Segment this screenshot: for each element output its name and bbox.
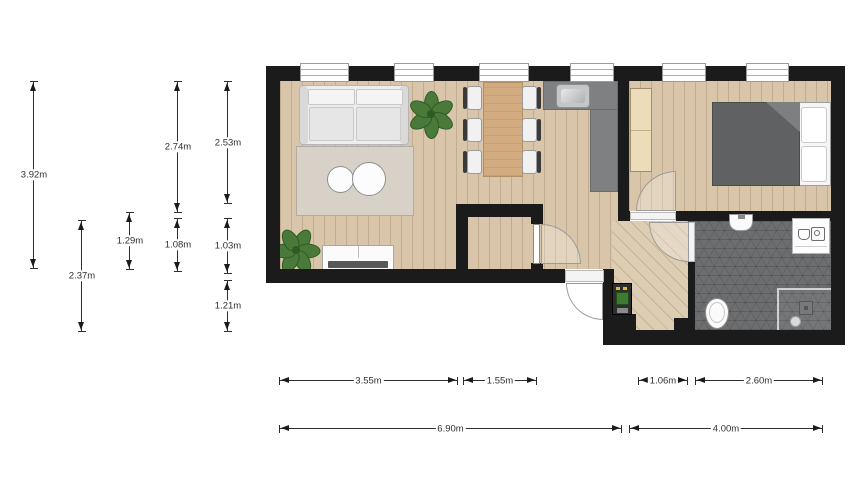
closet-wall: [531, 204, 543, 224]
window: [662, 63, 706, 82]
faucet: [738, 215, 745, 219]
dim-label: 1.29m: [115, 235, 145, 246]
dim-1-08m: 1.08m: [177, 219, 178, 271]
sofa-seat-cushion: [356, 107, 401, 141]
bed: [712, 102, 831, 186]
dim-2-60m: 2.60m: [696, 380, 822, 381]
shower-head: [790, 316, 801, 327]
wardrobe: [630, 88, 652, 172]
plant: [274, 226, 318, 274]
tv-cabinet: [322, 245, 394, 271]
dim-1-03m: 1.03m: [227, 219, 228, 273]
washer-panel-line: [795, 246, 827, 247]
closet-door: [533, 224, 540, 264]
bed-pillow: [801, 107, 827, 143]
dim-label: 1.08m: [163, 239, 193, 250]
dining-chair: [522, 150, 541, 174]
tech-closet-wall: [603, 314, 636, 331]
duvet-fold: [766, 102, 800, 132]
dim-label: 3.55m: [353, 375, 383, 386]
dim-2-53m: 2.53m: [227, 82, 228, 203]
exterior-wall-right: [831, 66, 845, 345]
dining-chair: [463, 118, 482, 142]
washer-dryer: [792, 218, 830, 254]
bedroom-door-threshold: [630, 212, 676, 220]
dim-label: 1.06m: [648, 375, 678, 386]
dining-table: [483, 82, 523, 177]
dim-2-37m: 2.37m: [81, 221, 82, 331]
meter: [617, 308, 628, 313]
exterior-wall-bottom: [266, 269, 565, 283]
dim-label: 2.37m: [67, 270, 97, 281]
floor-plan: 3.92m 2.37m 1.29m 2.74m 1.08m 2.53m 1.03…: [0, 0, 850, 500]
washer-door-icon: [811, 227, 825, 241]
sofa-back-cushion: [356, 89, 403, 105]
dining-chair: [463, 150, 482, 174]
dim-label: 2.74m: [163, 141, 193, 152]
dim-1-29m: 1.29m: [129, 213, 130, 269]
sink-basin: [561, 89, 585, 103]
dining-chair: [522, 86, 541, 110]
dim-label: 6.90m: [435, 423, 465, 434]
sofa-back-cushion: [308, 89, 355, 105]
dim-1-21m: 1.21m: [227, 281, 228, 331]
kitchen-counter: [590, 110, 618, 192]
bathroom-door-threshold: [688, 222, 695, 262]
soundbar: [328, 261, 388, 268]
exterior-wall-lower-bottom: [603, 330, 845, 345]
shower-enclosure: [777, 288, 831, 330]
exterior-wall-left: [266, 66, 280, 283]
entrance-door: [566, 283, 603, 320]
sofa-seat-cushion: [309, 107, 354, 141]
bed-pillow: [801, 146, 827, 182]
dim-1-06m: 1.06m: [639, 380, 687, 381]
window: [394, 63, 434, 82]
bathroom-wall: [688, 262, 695, 331]
dim-label: 4.00m: [711, 423, 741, 434]
bedroom-wall-stub: [618, 211, 630, 221]
sofa-armrest: [300, 86, 308, 144]
boiler-unit: [612, 283, 632, 315]
dim-6-90m: 6.90m: [280, 428, 621, 429]
window: [570, 63, 614, 82]
kitchen-bedroom-wall: [618, 66, 629, 221]
plant: [409, 90, 453, 138]
bathroom-sink: [729, 214, 753, 231]
dim-2-74m: 2.74m: [177, 82, 178, 212]
dim-label: 3.92m: [19, 169, 49, 180]
wardrobe-divider: [631, 130, 651, 131]
dining-chair: [522, 118, 541, 142]
dim-label: 2.53m: [213, 137, 243, 148]
toilet-bowl: [709, 302, 725, 323]
boiler-panel: [616, 292, 629, 305]
dim-4-00m: 4.00m: [630, 428, 822, 429]
dining-chair: [463, 86, 482, 110]
dim-label: 2.60m: [744, 375, 774, 386]
laundry-tub-icon: [798, 229, 810, 240]
coffee-table: [352, 162, 386, 196]
coffee-table: [327, 166, 354, 193]
kitchen-sink: [556, 84, 590, 108]
tv-cabinet-divider: [358, 246, 359, 258]
dim-1-55m: 1.55m: [464, 380, 536, 381]
closet-wall: [456, 204, 468, 269]
window: [300, 63, 349, 82]
indicator-light: [616, 287, 620, 290]
entrance-threshold: [565, 270, 604, 282]
dim-3-55m: 3.55m: [280, 380, 457, 381]
window: [746, 63, 789, 82]
window: [479, 63, 529, 82]
dim-label: 1.03m: [213, 240, 243, 251]
dim-3-92m: 3.92m: [33, 82, 34, 268]
dim-label: 1.21m: [213, 300, 243, 311]
dim-label: 1.55m: [485, 375, 515, 386]
indicator-light: [623, 287, 627, 290]
closet-wall: [456, 204, 543, 217]
shower-drain: [799, 301, 813, 315]
sofa: [299, 85, 409, 145]
